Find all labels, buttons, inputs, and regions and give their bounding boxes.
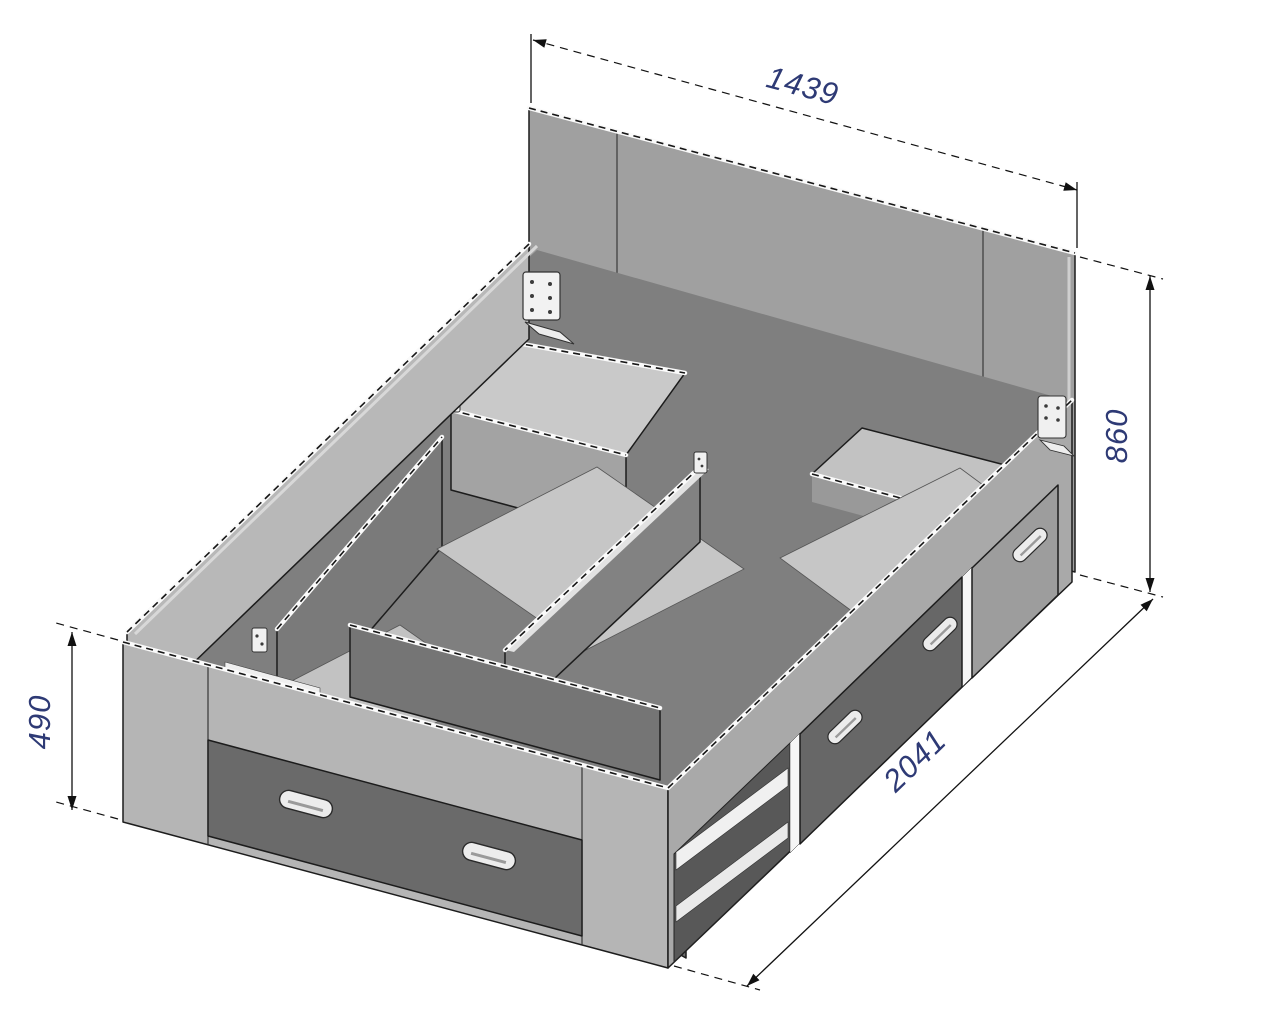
side-divider-strip bbox=[962, 567, 972, 687]
bed-frame-drawing: 1439 860 490 2041 bbox=[0, 0, 1280, 1023]
technical-drawing-canvas: 1439 860 490 2041 bbox=[0, 0, 1280, 1023]
dimension-label-foot-height: 490 bbox=[22, 695, 57, 750]
mounting-bracket-icon bbox=[694, 452, 707, 473]
dimension-label-width: 1439 bbox=[763, 60, 843, 113]
dimension-left: 490 bbox=[22, 623, 118, 819]
side-divider-strip bbox=[790, 733, 800, 853]
dimension-right: 860 bbox=[1080, 257, 1163, 597]
dimension-label-height: 860 bbox=[1099, 409, 1134, 464]
mounting-bracket-icon bbox=[252, 628, 267, 652]
